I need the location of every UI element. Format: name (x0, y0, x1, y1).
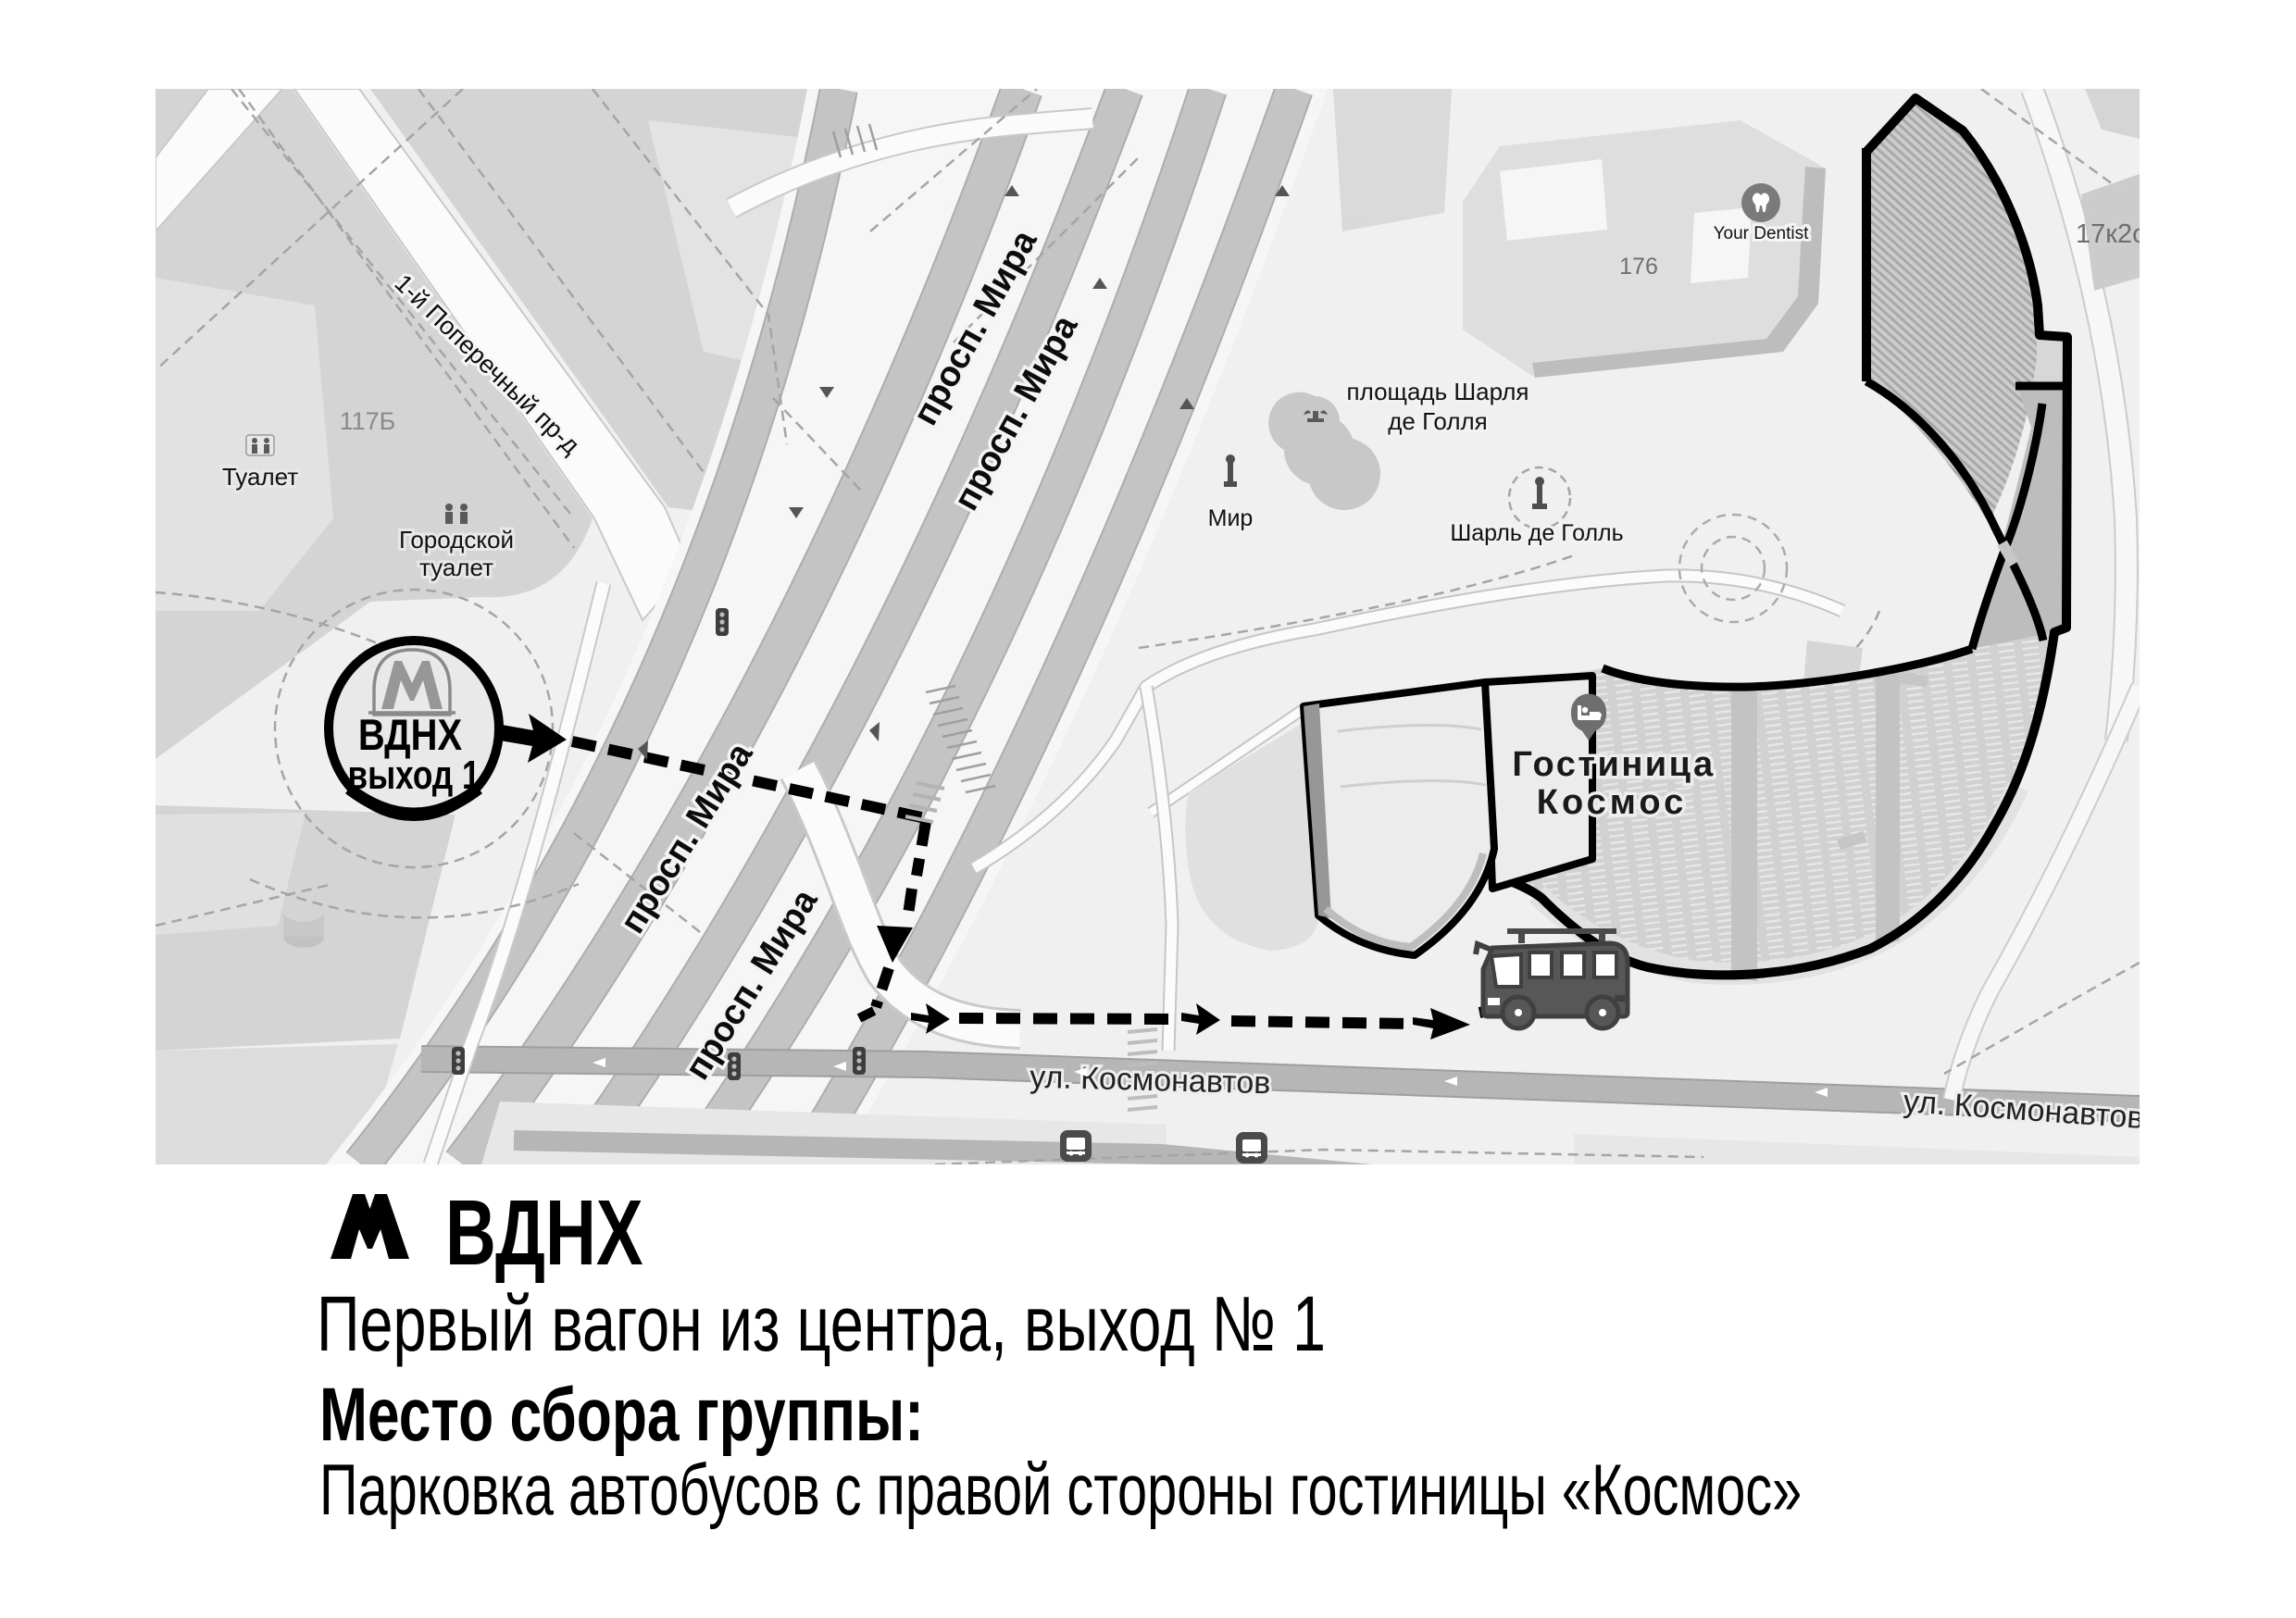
svg-text:Первый вагон из центра, выход: Первый вагон из центра, выход № 1 (317, 1280, 1326, 1367)
svg-text:ул. Космонавтов: ул. Космонавтов (1029, 1060, 1271, 1101)
svg-text:Космос: Космос (1537, 783, 1688, 822)
svg-text:Шарль де Голль: Шарль де Голль (1450, 520, 1623, 546)
svg-text:площадь Шарля: площадь Шарля (1347, 378, 1529, 405)
svg-text:де Голля: де Голля (1388, 407, 1488, 435)
svg-text:выход 1: выход 1 (347, 753, 480, 798)
svg-text:Туалет: Туалет (222, 463, 298, 491)
svg-text:176: 176 (1619, 254, 1658, 280)
svg-text:117Б: 117Б (340, 407, 396, 435)
svg-text:Парковка автобусов с правой ст: Парковка автобусов с правой стороны гост… (319, 1450, 1802, 1531)
svg-text:Your Dentist: Your Dentist (1714, 224, 1810, 243)
svg-text:Мир: Мир (1208, 505, 1254, 531)
svg-text:Гостиница: Гостиница (1512, 745, 1715, 784)
svg-text:Городской: Городской (399, 526, 514, 554)
svg-text:ВДНХ: ВДНХ (445, 1181, 643, 1284)
svg-text:туалет: туалет (419, 554, 493, 581)
svg-text:Место сбора группы:: Место сбора группы: (319, 1373, 924, 1457)
